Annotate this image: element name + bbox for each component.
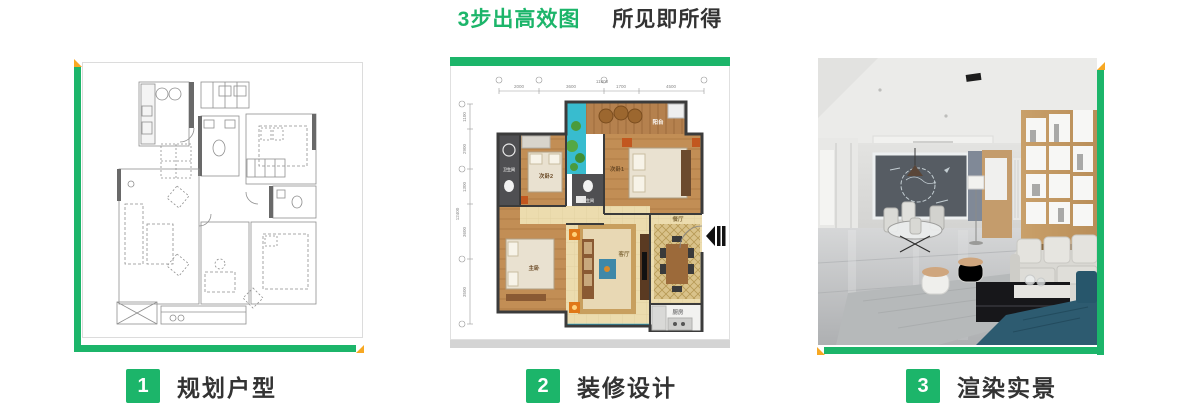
step-3-caption: 3 渲染实景: [906, 368, 1057, 404]
step-2-label: 装修设计: [577, 369, 677, 403]
step-1-panel[interactable]: [74, 55, 366, 353]
radiator: [1013, 158, 1021, 220]
dim-label: 1100: [462, 111, 467, 121]
page-title-highlight: 3步出高效图: [458, 8, 581, 31]
floorplan-sketch-image: [101, 74, 345, 326]
step-1-number-badge: 1: [126, 369, 160, 403]
green-frame-top: [450, 57, 730, 66]
study: [201, 222, 249, 304]
bathroom-2: [269, 186, 316, 218]
green-frame-bottom: [74, 345, 356, 352]
dim-label: 1300: [462, 181, 467, 192]
room-label-bedroom2: 次卧2: [539, 172, 553, 180]
step-3-label: 渲染实景: [957, 369, 1057, 403]
dim-label: 1700: [616, 84, 627, 89]
bedroom1-area: [604, 134, 702, 214]
step-1-caption: 1 规划户型: [126, 368, 277, 404]
dim-label: 3600: [462, 226, 467, 237]
dining-table: [161, 144, 191, 178]
room-label-master: 主卧: [528, 264, 540, 272]
step-2-panel[interactable]: 2000 3600 1700 4500 11800 1100 2900 1300: [450, 57, 730, 348]
step-3-panel[interactable]: [812, 58, 1104, 356]
render-photo-card[interactable]: [818, 58, 1097, 345]
room-label-bath2: 卫生间: [582, 197, 594, 203]
card-base-strip: [450, 340, 730, 348]
dim-label: 2900: [462, 143, 467, 154]
room-label-living: 客厅: [617, 250, 630, 258]
entry-door-icon: [706, 226, 726, 246]
bedroom2-area: [520, 134, 566, 206]
room-label-kitchen: 厨房: [672, 308, 684, 316]
floorplan-colored-image: 2000 3600 1700 4500 11800 1100 2900 1300: [454, 74, 726, 332]
corner-accent-icon: [1097, 62, 1105, 70]
step-1-label: 规划户型: [177, 369, 277, 403]
room-label-bath1: 卫生间: [503, 166, 515, 172]
wood-panel: [982, 150, 1012, 238]
corner-accent-icon: [74, 59, 82, 67]
green-frame-right: [1097, 70, 1104, 355]
floorplan-colored-card[interactable]: 2000 3600 1700 4500 11800 1100 2900 1300: [450, 66, 730, 340]
render-photo-image: [818, 58, 1097, 345]
step-2-caption: 2 装修设计: [526, 368, 677, 404]
page-title-rest: 所见即所得: [612, 8, 722, 31]
green-frame-left: [74, 67, 81, 352]
kitchen-area: [650, 304, 702, 332]
living-room: [117, 169, 199, 304]
step-3-number-badge: 3: [906, 369, 940, 403]
green-frame-bottom: [824, 347, 1104, 354]
dim-label: 3500: [462, 286, 467, 297]
kitchen: [139, 82, 194, 146]
page: 3步出高效图所见即所得: [0, 0, 1180, 406]
floorplan-sketch-card[interactable]: [82, 62, 363, 338]
room-label-balcony: 阳台: [652, 118, 664, 126]
dim-label: 2000: [514, 84, 525, 89]
water-garden: [566, 102, 586, 174]
balcony-area: [582, 102, 686, 134]
elevator: [117, 302, 157, 324]
balcony: [161, 306, 246, 324]
closet: [201, 82, 249, 108]
room-label-dining: 餐厅: [671, 215, 684, 223]
dim-total-label: 11800: [596, 79, 609, 84]
dim-label: 4500: [666, 84, 677, 89]
corner-accent-icon: [356, 345, 364, 353]
dim-total-label: 12400: [455, 207, 460, 220]
dim-label: 3600: [566, 84, 577, 89]
bedroom-bottom-right: [243, 222, 316, 308]
bedroom-top-right: [246, 114, 316, 184]
step-2-number-badge: 2: [526, 369, 560, 403]
bathroom: [198, 116, 239, 176]
room-label-bedroom1: 次卧1: [610, 165, 624, 173]
page-title: 3步出高效图所见即所得: [0, 3, 1180, 33]
